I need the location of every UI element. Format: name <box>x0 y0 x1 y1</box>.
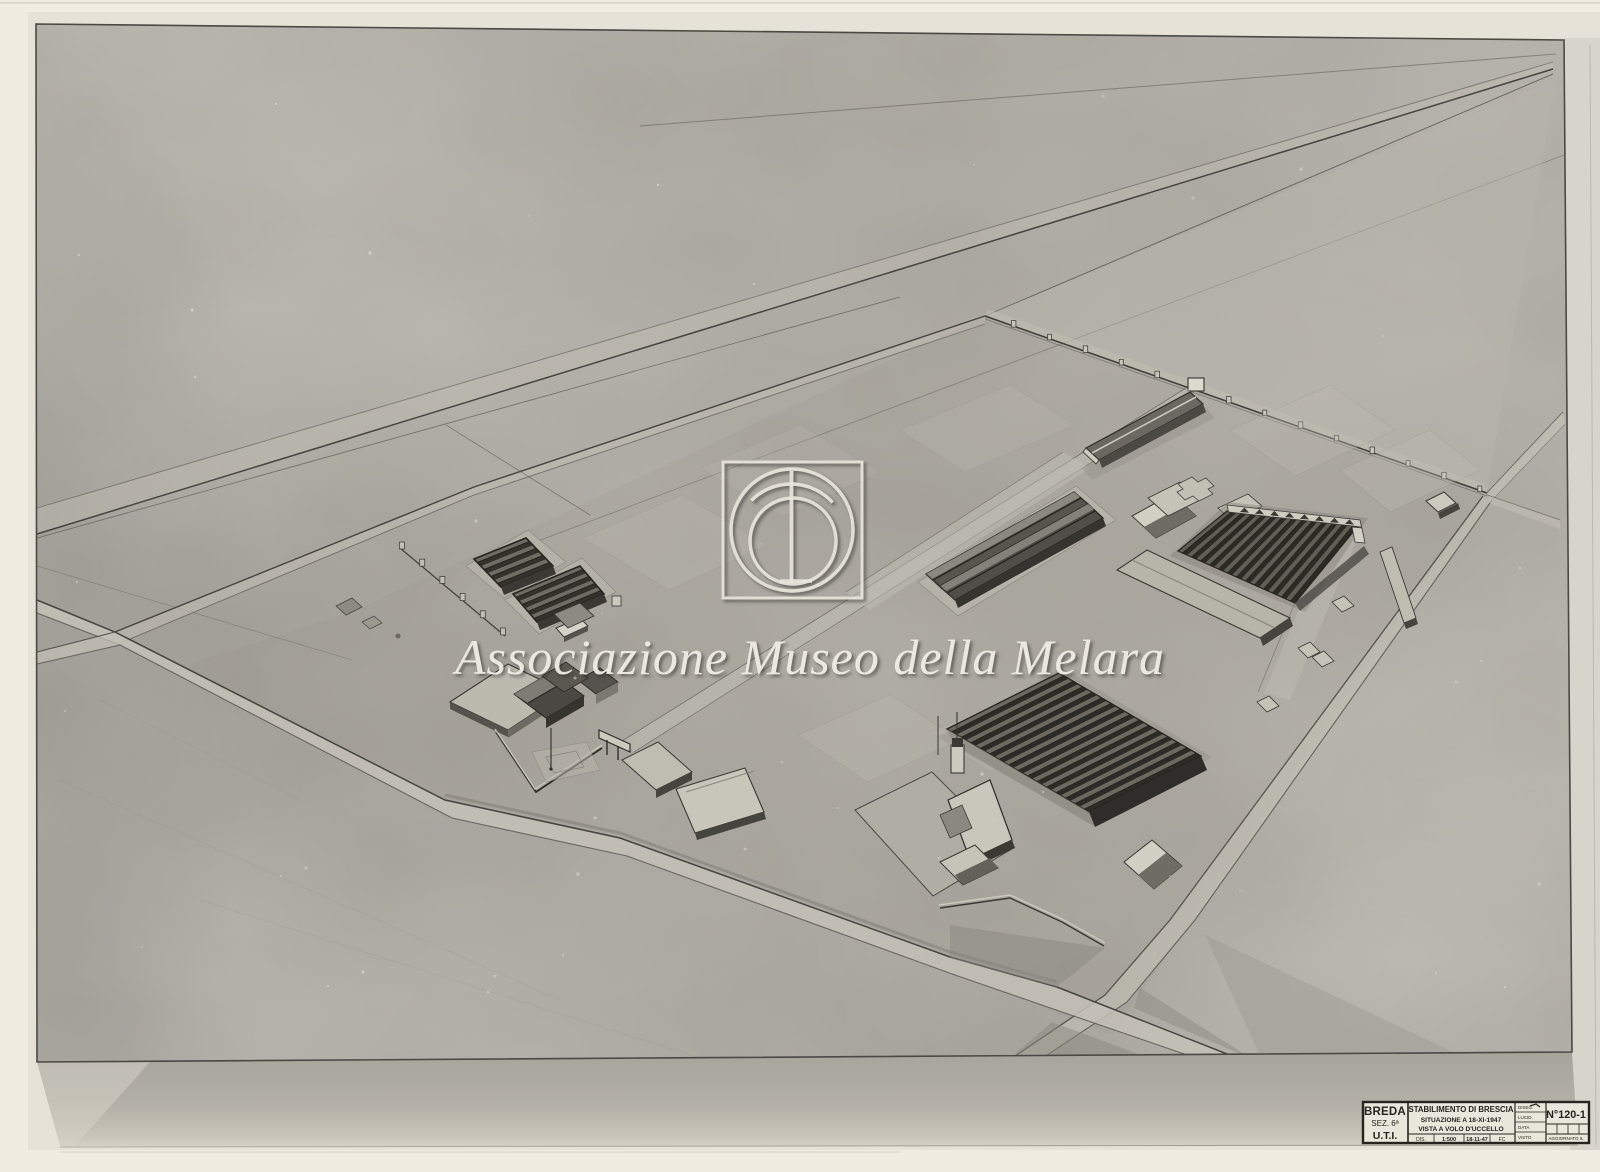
svg-text:VISTA A VOLO D'UCCELLO: VISTA A VOLO D'UCCELLO <box>1418 1126 1503 1133</box>
svg-text:SITUAZIONE A 18-XI-1947: SITUAZIONE A 18-XI-1947 <box>1421 1117 1502 1124</box>
svg-text:DATA: DATA <box>1518 1125 1529 1130</box>
svg-text:LUCID.: LUCID. <box>1518 1115 1533 1120</box>
svg-text:STABILIMENTO DI BRESCIA: STABILIMENTO DI BRESCIA <box>1409 1105 1514 1114</box>
svg-text:1:500: 1:500 <box>1442 1137 1456 1143</box>
svg-text:N°120-1: N°120-1 <box>1546 1109 1586 1121</box>
svg-text:Associazione Museo della Melar: Associazione Museo della Melara <box>452 629 1165 685</box>
svg-text:AGGIORNATO IL: AGGIORNATO IL <box>1548 1136 1584 1141</box>
svg-text:18-11-47: 18-11-47 <box>1466 1137 1488 1143</box>
svg-text:FC: FC <box>1499 1137 1506 1143</box>
svg-text:SEZ. 6ª: SEZ. 6ª <box>1371 1119 1398 1128</box>
svg-text:DIS.: DIS. <box>1416 1137 1426 1143</box>
svg-text:BREDA: BREDA <box>1364 1106 1406 1118</box>
svg-text:VISTO: VISTO <box>1518 1135 1532 1140</box>
svg-text:U.T.I.: U.T.I. <box>1373 1130 1398 1142</box>
